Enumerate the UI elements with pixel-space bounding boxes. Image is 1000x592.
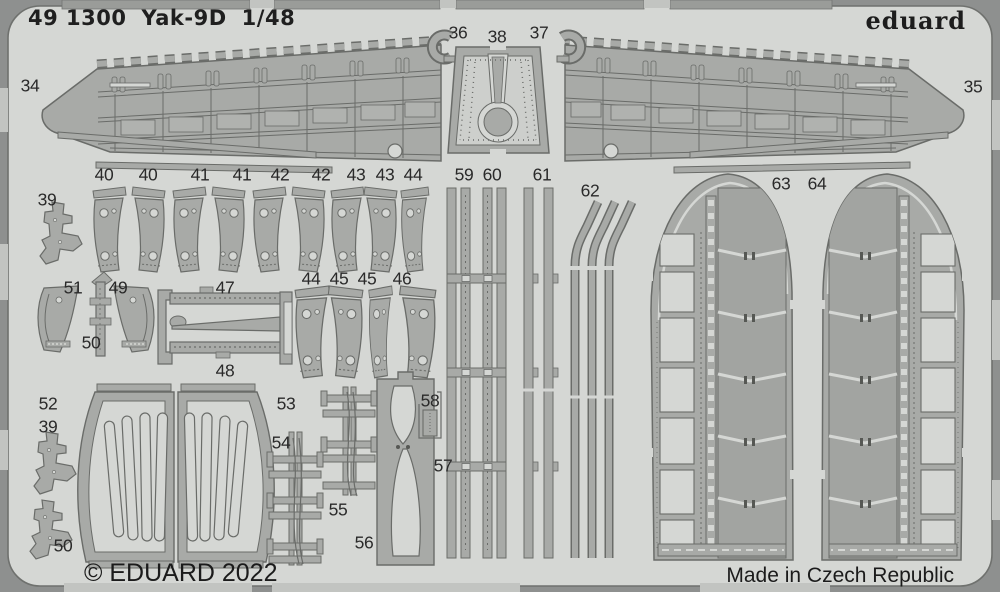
part-number-label: 54 (272, 433, 291, 454)
part-number-label: 61 (533, 165, 552, 186)
part-number-label: 38 (488, 27, 507, 48)
part-number-label: 42 (271, 165, 290, 186)
part-number-label: 56 (355, 533, 374, 554)
flap-ribs-40-44 (93, 187, 429, 272)
part-number-label: 43 (347, 165, 366, 186)
brand-logo: eduard (866, 6, 966, 35)
part-number-label: 39 (38, 190, 57, 211)
fret-sheet-graphic (0, 0, 1000, 592)
catalog-number: 49 1300 (28, 6, 126, 30)
part-number-label: 35 (964, 77, 983, 98)
part-64 (820, 174, 967, 560)
part-number-label: 55 (329, 500, 348, 521)
part-number-label: 40 (95, 165, 114, 186)
part-number-label: 52 (39, 394, 58, 415)
part-number-label: 41 (191, 165, 210, 186)
part-number-label: 47 (216, 278, 235, 299)
part-number-label: 36 (449, 23, 468, 44)
part-number-label: 53 (277, 394, 296, 415)
part-number-label: 59 (455, 165, 474, 186)
copyright-text: © EDUARD 2022 (84, 559, 278, 588)
part-number-label: 45 (358, 269, 377, 290)
part-number-label: 40 (139, 165, 158, 186)
part-number-label: 46 (393, 269, 412, 290)
part-number-label: 44 (404, 165, 423, 186)
part-number-label: 39 (39, 417, 58, 438)
part-38 (448, 44, 549, 155)
part-number-label: 37 (530, 23, 549, 44)
part-63 (648, 174, 795, 560)
part-number-label: 43 (376, 165, 395, 186)
part-number-label: 51 (64, 278, 83, 299)
part-number-label: 41 (233, 165, 252, 186)
subject-name: Yak-9D (141, 6, 226, 30)
scale: 1/48 (242, 6, 296, 30)
part-number-label: 45 (330, 269, 349, 290)
part-number-label: 57 (434, 456, 453, 477)
part-number-label: 60 (483, 165, 502, 186)
part-number-label: 42 (312, 165, 331, 186)
part-number-label: 64 (808, 174, 827, 195)
part-number-label: 62 (581, 181, 600, 202)
sheet-title: 49 1300 Yak-9D 1/48 (28, 6, 295, 30)
origin-text: Made in Czech Republic (726, 564, 954, 588)
part-number-label: 58 (421, 391, 440, 412)
parts-47-48 (158, 287, 292, 364)
photoetch-sheet-photo: 49 1300 Yak-9D 1/48 eduard © EDUARD 2022… (0, 0, 1000, 592)
part-number-label: 50 (82, 333, 101, 354)
part-number-label: 48 (216, 361, 235, 382)
part-number-label: 44 (302, 269, 321, 290)
part-number-label: 50 (54, 536, 73, 557)
part-number-label: 49 (109, 278, 128, 299)
part-number-label: 34 (21, 76, 40, 97)
part-number-label: 63 (772, 174, 791, 195)
